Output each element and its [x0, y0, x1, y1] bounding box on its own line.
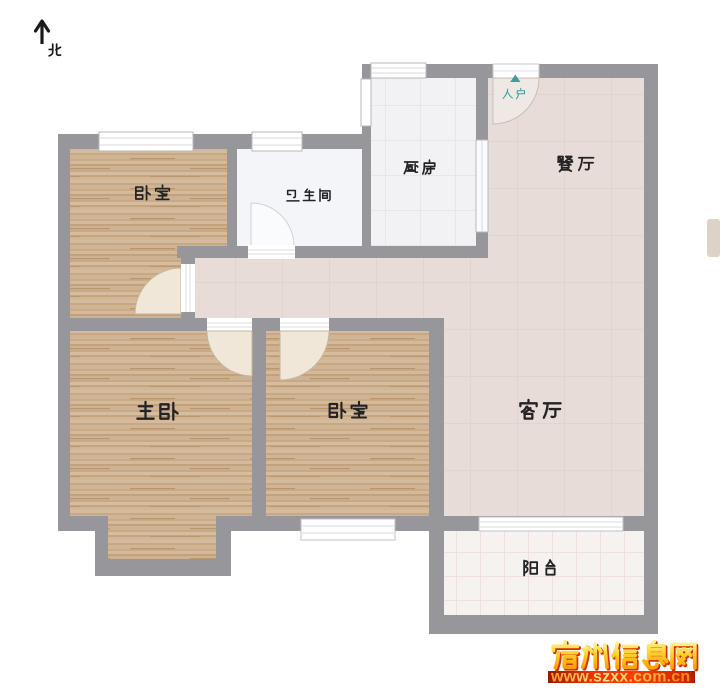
- svg-text:www.szxx.com.cn: www.szxx.com.cn: [550, 669, 690, 686]
